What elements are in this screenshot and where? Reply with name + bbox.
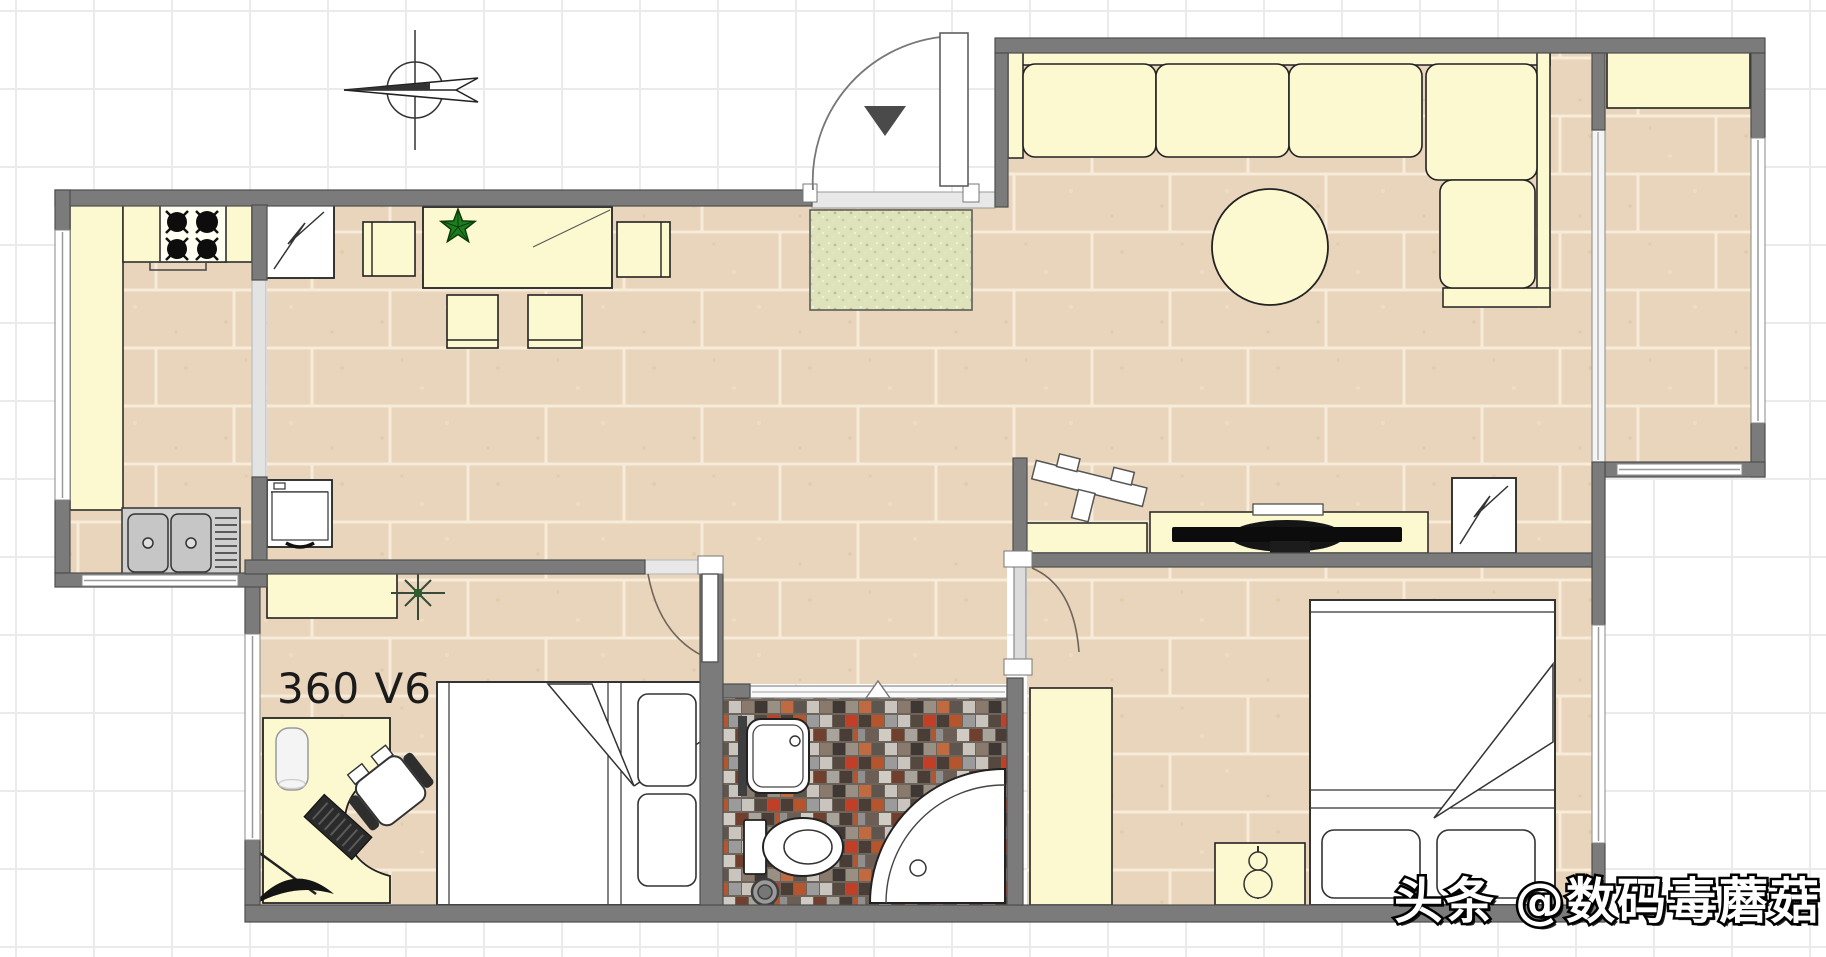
kitchen-bottom-window	[82, 575, 238, 586]
door-leaf	[1014, 567, 1026, 659]
wall	[1751, 53, 1765, 138]
balcony-right-window	[1751, 138, 1765, 423]
floor-plan-page: 360 V6 头条 @数码毒蘑菇 头条 @数码毒蘑菇	[0, 0, 1826, 957]
product-label: 360 V6	[277, 664, 432, 713]
floor-balcony	[1605, 53, 1751, 462]
wall	[245, 560, 645, 574]
coffee-table	[1212, 189, 1328, 305]
dining-chair	[363, 222, 415, 276]
toilet	[744, 818, 843, 876]
nightstand	[1215, 843, 1305, 905]
door-leaf	[702, 574, 718, 662]
floor-plan-canvas: 360 V6 头条 @数码毒蘑菇 头条 @数码毒蘑菇	[0, 0, 1826, 957]
wall	[55, 190, 70, 230]
bedroom-bed	[437, 682, 703, 905]
wall	[1013, 458, 1027, 555]
wall	[1013, 553, 1592, 567]
side-cabinet	[1025, 523, 1147, 553]
master-bed	[1310, 600, 1555, 905]
kitchen-left-window	[55, 230, 70, 500]
router-360v6	[276, 728, 308, 790]
door-leaf	[940, 33, 968, 186]
wardrobe	[1030, 688, 1112, 905]
floor-corridor	[723, 560, 1007, 684]
dining-chair	[617, 222, 670, 277]
floor-appliance	[1452, 478, 1516, 553]
wall	[1007, 678, 1023, 905]
pillow	[638, 794, 696, 886]
stove	[150, 205, 226, 270]
wall	[995, 53, 1008, 207]
balcony-cabinet	[1607, 50, 1750, 108]
kitchen-sink	[122, 508, 240, 578]
bedroom-left-window	[245, 634, 260, 840]
doormat	[810, 210, 972, 310]
kitchen-slide-opening	[252, 280, 266, 477]
washing-machine	[267, 480, 332, 547]
wall	[723, 684, 750, 698]
wall	[252, 205, 267, 280]
door-jamb	[1004, 659, 1032, 675]
wall	[995, 38, 1765, 53]
watermark: 头条 @数码毒蘑菇	[1394, 873, 1821, 930]
wall	[55, 500, 70, 573]
wall	[252, 477, 267, 573]
door-jamb	[1004, 551, 1032, 567]
bathroom-sink	[738, 716, 809, 796]
wall	[55, 190, 812, 206]
fridge	[266, 205, 334, 278]
bedroom-door-threshold	[645, 560, 700, 574]
bedroom-shelf	[267, 568, 397, 618]
door-jamb	[803, 184, 817, 202]
wall	[1592, 462, 1605, 625]
wall	[245, 840, 260, 905]
door-jamb	[698, 556, 723, 574]
balcony-bottom-window	[1617, 464, 1742, 475]
wall	[1592, 53, 1605, 130]
master-right-window	[1592, 625, 1605, 843]
pillow	[638, 694, 696, 786]
dining-table	[423, 207, 612, 288]
floor-drain-icon	[752, 879, 778, 905]
